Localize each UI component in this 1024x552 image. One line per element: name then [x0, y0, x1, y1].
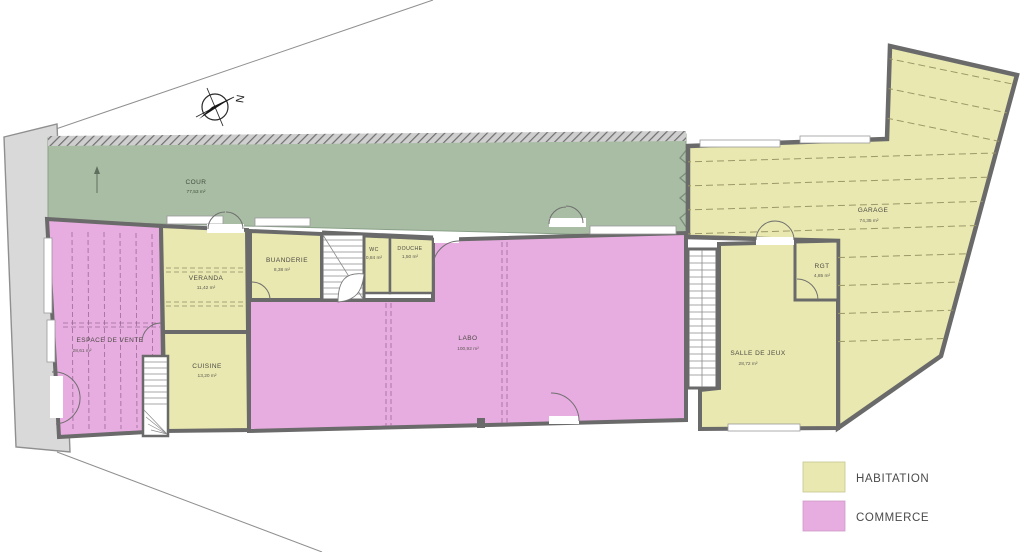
parcel-boundary-line-north [50, 0, 433, 131]
door-gap [756, 237, 794, 245]
room-garage-label: GARAGE [858, 207, 889, 214]
room-veranda-label: VERANDA [189, 275, 224, 282]
room-garage-area-value: 74,35 m² [860, 218, 879, 224]
door-gap [207, 224, 244, 233]
window [800, 136, 870, 143]
door-gap [549, 416, 579, 424]
room-buanderie-label: BUANDERIE [266, 257, 308, 264]
legend-label-habitation: HABITATION [856, 473, 929, 485]
room-wc-area-value: 0,84 m² [366, 255, 383, 261]
room-cour-area-value: 77,53 m² [187, 189, 206, 195]
room-cuisine-area-value: 13,20 m² [198, 373, 217, 379]
room-espace-de-vente-label: ESPACE DE VENTE [77, 337, 144, 344]
door-gap [549, 218, 586, 227]
legend-label-commerce: COMMERCE [856, 512, 929, 524]
room-douche-label: DOUCHE [397, 246, 422, 252]
wall-step [477, 418, 485, 428]
room-buanderie-area-fill [250, 231, 322, 300]
room-labo-label: LABO [458, 335, 477, 342]
compass-north-label: N [233, 94, 246, 104]
room-douche-area-value: 1,50 m² [402, 254, 419, 260]
window [44, 238, 52, 313]
door-gap [50, 376, 63, 418]
room-veranda-area-value: 11,42 m² [197, 285, 216, 291]
stair-shop [143, 356, 168, 436]
room-espace-de-vente-area-value: 28,61 m² [73, 348, 92, 354]
window [47, 320, 55, 362]
room-salle-de-jeux-area-value: 28,72 m² [739, 361, 758, 367]
window [167, 216, 223, 224]
room-cuisine-label: CUISINE [192, 363, 222, 370]
window [255, 218, 310, 226]
courtyard-zone [48, 131, 692, 237]
room-salle-de-jeux-label: SALLE DE JEUX [730, 350, 786, 357]
room-rgt-label: RGT [814, 263, 829, 270]
legend-swatch-commerce [803, 501, 845, 531]
rooms-layer [47, 46, 1017, 437]
room-wc-label: WC [369, 247, 379, 253]
window [728, 424, 800, 431]
room-cour-label: COUR [186, 179, 207, 186]
legend-swatch-habitation [803, 462, 845, 492]
compass: N [196, 88, 246, 126]
room-rgt-area-value: 4,85 m² [814, 273, 831, 279]
legend: HABITATION COMMERCE [803, 462, 929, 531]
door-gap [434, 235, 459, 243]
stair-east [688, 249, 717, 388]
room-cour-area-fill [48, 134, 686, 237]
room-buanderie-area-value: 8,38 m² [274, 267, 291, 273]
room-labo-area-value: 100,92 m² [457, 346, 479, 352]
floor-plan: N COUR 77,53 m² ESPACE DE VENTE 28,61 m²… [0, 0, 1024, 552]
window [590, 226, 676, 234]
floor-plan-page: N COUR 77,53 m² ESPACE DE VENTE 28,61 m²… [0, 0, 1024, 552]
room-wc-area-fill [364, 236, 390, 293]
parcel-boundary-line-south [57, 452, 322, 552]
window [700, 140, 780, 147]
room-cuisine-area-fill [163, 332, 249, 431]
